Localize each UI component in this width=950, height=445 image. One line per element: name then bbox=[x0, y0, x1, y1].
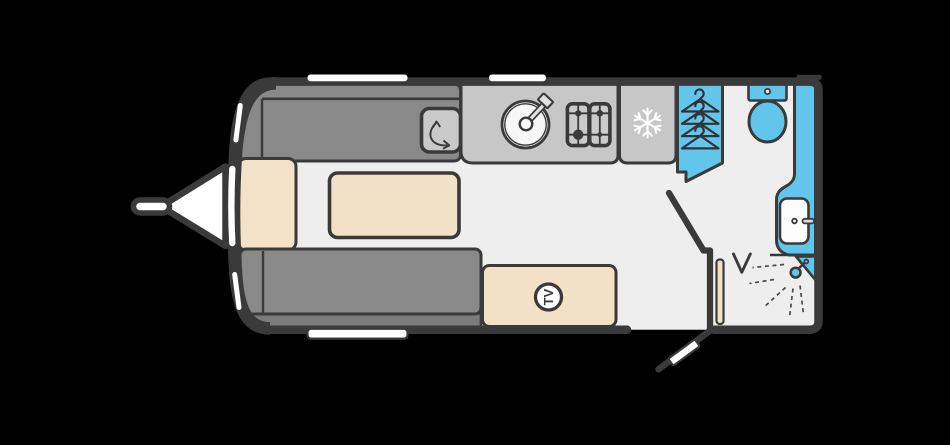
svg-text:TV: TV bbox=[541, 288, 556, 305]
